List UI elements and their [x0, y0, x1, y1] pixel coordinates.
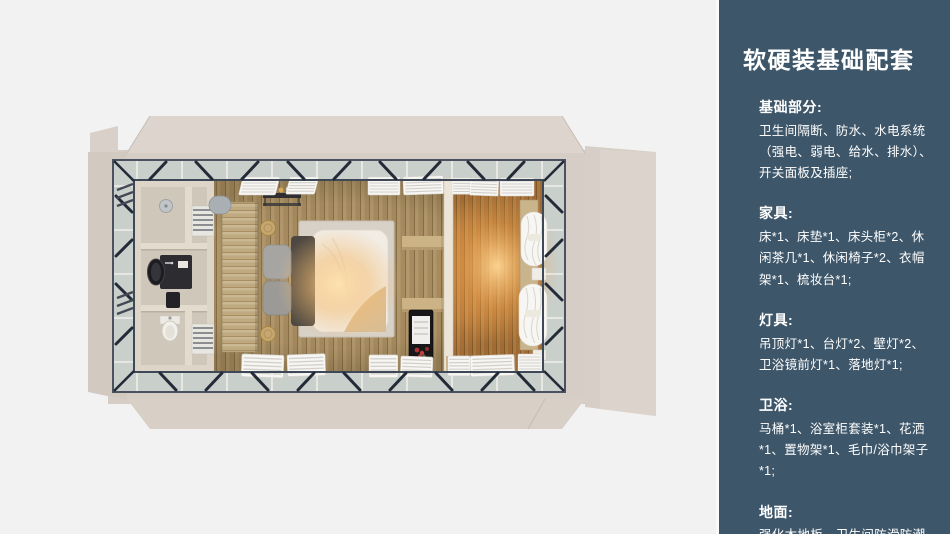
bathroom — [134, 180, 214, 372]
section-basics: 基础部分: 卫生间隔断、防水、水电系统（强电、弱电、给水、排水）、开关面板及插座… — [759, 99, 938, 185]
section-basics-heading: 基础部分: — [759, 99, 938, 116]
roof-panel-right-fold — [600, 150, 656, 416]
towel-rack-bottom — [192, 324, 214, 354]
bathroom-divider-bottom — [185, 309, 192, 365]
ac-unit — [209, 196, 231, 214]
nightstand-stool-top — [261, 221, 276, 236]
section-flooring: 地面: 强化木地板、卫生间防滑防潮石塑板; — [759, 504, 938, 534]
section-lighting-heading: 灯具: — [759, 312, 938, 329]
screenshot: 软硬装基础配套 基础部分: 卫生间隔断、防水、水电系统（强电、弱电、给水、排水）… — [0, 0, 950, 534]
lamp-glow-bed — [276, 228, 400, 340]
bathroom-divider-top — [185, 187, 192, 243]
section-lighting-body: 吊顶灯*1、台灯*2、壁灯*2、卫浴镜前灯*1、落地灯*1; — [759, 334, 937, 377]
section-furniture: 家具: 床*1、床垫*1、床头柜*2、休闲茶几*1、休闲椅子*2、衣帽架*1、梳… — [759, 205, 938, 291]
nightstand-stool-bottom — [261, 327, 276, 342]
bathroom-partition-1 — [141, 243, 207, 250]
section-furniture-heading: 家具: — [759, 205, 938, 222]
roof-panel-top — [127, 116, 585, 153]
section-flooring-heading: 地面: — [759, 504, 938, 521]
render-area — [0, 0, 716, 534]
section-furniture-body: 床*1、床垫*1、床头柜*2、休闲茶几*1、休闲椅子*2、衣帽架*1、梳妆台*1… — [759, 227, 937, 291]
section-sanitary: 卫浴: 马桶*1、浴室柜套装*1、花洒*1、置物架*1、毛巾/浴巾架子*1; — [759, 397, 938, 483]
roof-panel-bottom — [127, 399, 585, 429]
floorplan-svg — [0, 0, 716, 534]
section-basics-body: 卫生间隔断、防水、水电系统（强电、弱电、给水、排水）、开关面板及插座; — [759, 121, 937, 185]
panel-title: 软硬装基础配套 — [743, 46, 938, 75]
roof-panel-left-tab — [90, 126, 118, 152]
section-flooring-body: 强化木地板、卫生间防滑防潮石塑板; — [759, 525, 937, 534]
section-sanitary-heading: 卫浴: — [759, 397, 938, 414]
info-panel: 软硬装基础配套 基础部分: 卫生间隔断、防水、水电系统（强电、弱电、给水、排水）… — [716, 0, 950, 534]
section-lighting: 灯具: 吊顶灯*1、台灯*2、壁灯*2、卫浴镜前灯*1、落地灯*1; — [759, 312, 938, 376]
section-sanitary-body: 马桶*1、浴室柜套装*1、花洒*1、置物架*1、毛巾/浴巾架子*1; — [759, 419, 937, 483]
